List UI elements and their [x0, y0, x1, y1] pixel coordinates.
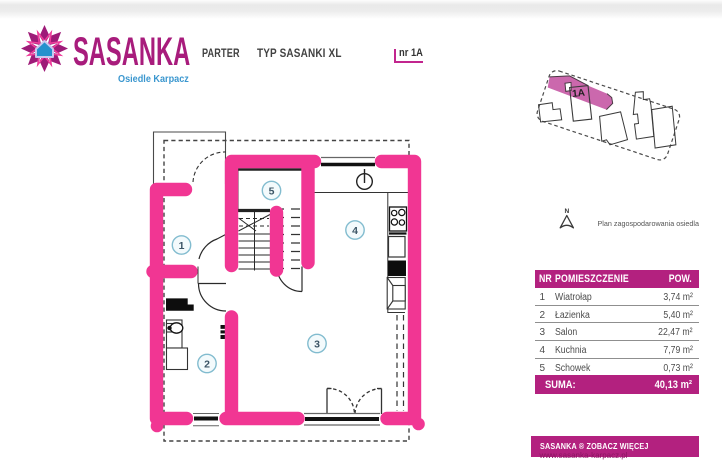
svg-text:4: 4 — [352, 225, 358, 237]
svg-text:5: 5 — [269, 186, 275, 198]
svg-text:Plan zagospodarowania osiedla: Plan zagospodarowania osiedla — [598, 219, 700, 228]
svg-text:N: N — [564, 208, 569, 215]
svg-text:2: 2 — [204, 359, 210, 371]
svg-text:1A: 1A — [572, 88, 586, 100]
svg-text:3: 3 — [314, 339, 320, 351]
svg-text:1: 1 — [179, 240, 185, 252]
